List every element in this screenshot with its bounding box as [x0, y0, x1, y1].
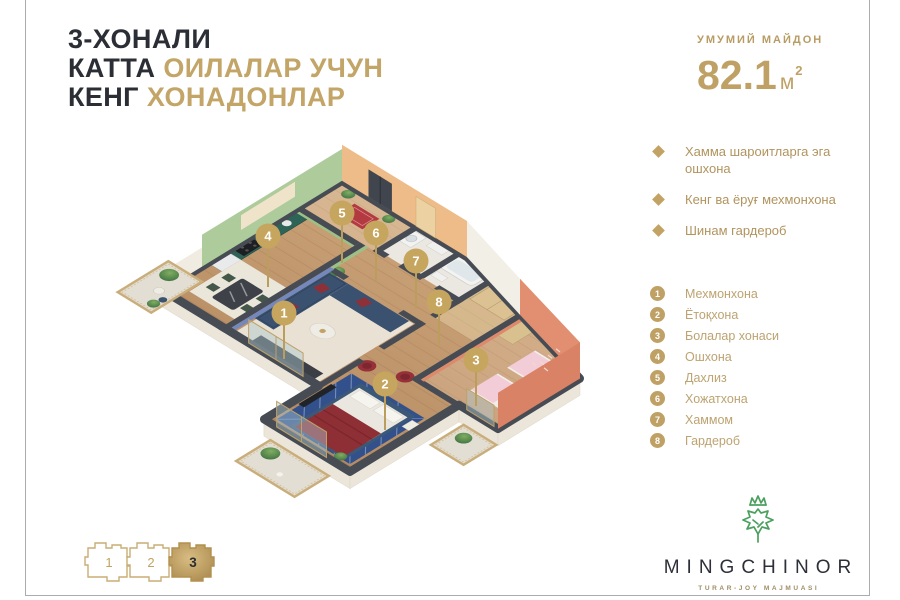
legend-label: Дахлиз [685, 371, 727, 385]
apartment-3d [110, 145, 610, 533]
legend-number-badge: 6 [650, 391, 665, 406]
marker-2: 2 [373, 372, 398, 397]
chinor-tree-icon [732, 494, 784, 544]
legend-number-badge: 1 [650, 286, 665, 301]
marker-4: 4 [256, 224, 281, 249]
feature-text: Шинам гардероб [685, 222, 786, 239]
legend-row: 5Дахлиз [650, 367, 779, 388]
legend-label: Хаммом [685, 413, 733, 427]
marker-6: 6 [364, 221, 389, 246]
title-line2-dark: КАТТА [68, 53, 155, 83]
svg-text:7: 7 [412, 254, 419, 269]
svg-text:3: 3 [472, 353, 479, 368]
legend-row: 6Хожатхона [650, 388, 779, 409]
legend-row: 3Болалар хонаси [650, 325, 779, 346]
feature-list: Хамма шароитларга эга ошхона Кенг ва ёру… [650, 143, 860, 253]
page-title: 3-ХОНАЛИ КАТТА ОИЛАЛАР УЧУН КЕНГ ХОНАДОН… [68, 25, 383, 112]
legend-label: Гардероб [685, 434, 740, 448]
marker-8: 8 [427, 290, 452, 315]
logo-name: MINGCHINOR [645, 557, 877, 579]
legend-row: 7Хаммом [650, 409, 779, 430]
legend-label: Хожатхона [685, 392, 748, 406]
title-line2-gold: ОИЛАЛАР УЧУН [163, 53, 383, 83]
title-line3-gold: ХОНАДОНЛАР [147, 82, 346, 112]
legend-label: Мехмонхона [685, 287, 758, 301]
legend-row: 4Ошхона [650, 346, 779, 367]
svg-text:1: 1 [280, 306, 287, 321]
legend-label: Болалар хонаси [685, 329, 779, 343]
feature-text: Кенг ва ёруғ мехмонхона [685, 191, 836, 208]
feature-item: Кенг ва ёруғ мехмонхона [650, 191, 860, 208]
title-line1: 3-ХОНАЛИ [68, 24, 211, 54]
legend-row: 2Ётоқхона [650, 304, 779, 325]
legend-row: 1Мехмонхона [650, 283, 779, 304]
svg-text:4: 4 [264, 229, 272, 244]
feature-item: Шинам гардероб [650, 222, 860, 239]
feature-text: Хамма шароитларга эга ошхона [685, 143, 855, 177]
room-legend: 1Мехмонхона 2Ётоқхона 3Болалар хонаси 4О… [650, 283, 779, 451]
marker-7: 7 [404, 249, 429, 274]
marker-1: 1 [272, 301, 297, 326]
legend-number-badge: 8 [650, 433, 665, 448]
legend-number-badge: 2 [650, 307, 665, 322]
legend-number-badge: 4 [650, 349, 665, 364]
floorplan-render: 1 2 3 4 5 6 7 8 [110, 135, 610, 585]
legend-number-badge: 7 [650, 412, 665, 427]
diamond-bullet-icon [652, 145, 665, 158]
marker-5: 5 [330, 201, 355, 226]
poster: 3-ХОНАЛИ КАТТА ОИЛАЛАР УЧУН КЕНГ ХОНАДОН… [0, 0, 900, 600]
title-line3-dark: КЕНГ [68, 82, 139, 112]
legend-number-badge: 5 [650, 370, 665, 385]
total-area: УМУМИЙ МАЙДОН 82.1м2 [697, 34, 823, 99]
logo-tagline: TURAR-JOY MAJMUASI [645, 585, 873, 592]
area-label: УМУМИЙ МАЙДОН [697, 34, 823, 46]
legend-label: Ошхона [685, 350, 732, 364]
svg-text:5: 5 [338, 206, 345, 221]
legend-label: Ётоқхона [685, 308, 738, 322]
svg-text:2: 2 [381, 377, 388, 392]
svg-text:8: 8 [435, 295, 442, 310]
diamond-bullet-icon [652, 224, 665, 237]
diamond-bullet-icon [652, 193, 665, 206]
area-value: 82.1м2 [697, 52, 823, 99]
marker-3: 3 [464, 348, 489, 373]
feature-item: Хамма шароитларга эга ошхона [650, 143, 860, 177]
legend-number-badge: 3 [650, 328, 665, 343]
brand-logo: MINGCHINOR TURAR-JOY MAJMUASI [645, 494, 870, 592]
legend-row: 8Гардероб [650, 430, 779, 451]
svg-text:6: 6 [372, 226, 379, 241]
